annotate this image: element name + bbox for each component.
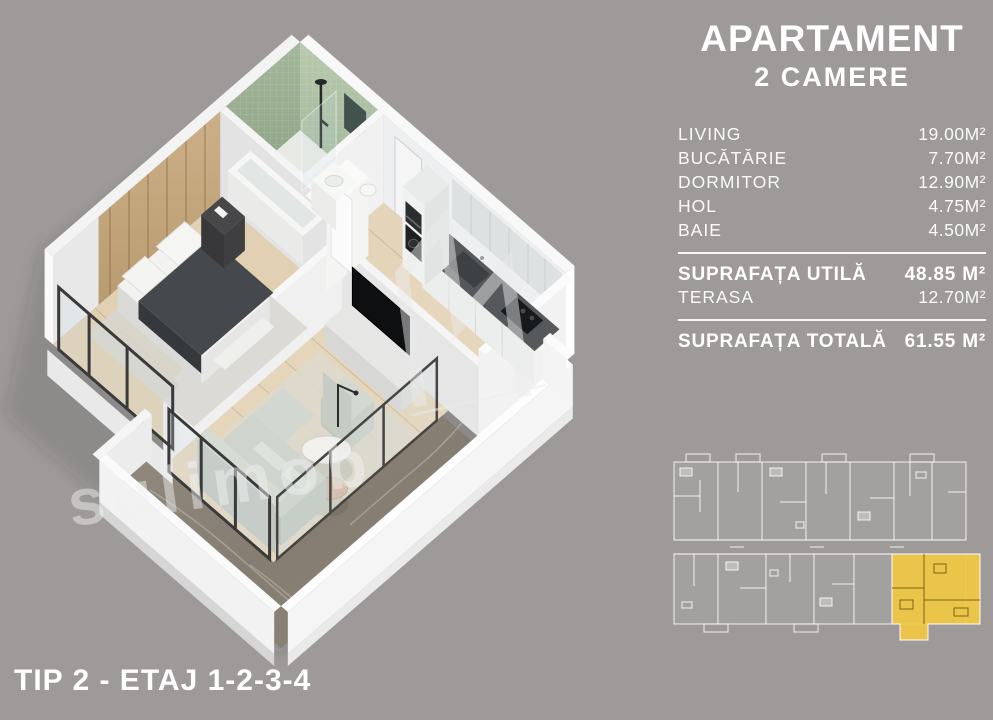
room-row-dormitor: DORMITOR 12.90M²	[678, 171, 986, 195]
useful-area-value: 48.85 M²	[905, 263, 986, 287]
room-label: LIVING	[678, 123, 741, 147]
divider	[678, 319, 986, 321]
room-row-baie: BAIE 4.50M²	[678, 219, 986, 243]
room-area: 12.90M²	[918, 171, 986, 195]
room-area: 7.70M²	[929, 147, 986, 171]
useful-area-label: SUPRAFAȚA UTILĂ	[678, 263, 867, 287]
room-area: 4.75M²	[929, 195, 986, 219]
highlighted-unit	[892, 554, 980, 640]
room-row-living: LIVING 19.00M²	[678, 123, 986, 147]
title-line1: APARTAMENT	[678, 20, 986, 57]
floorplan-3d-render	[0, 0, 665, 720]
room-area: 4.50M²	[929, 219, 986, 243]
appliance-tower	[403, 166, 449, 286]
apartment-listing-card: sulimob APARTAMENT 2 CAMERE LIVING 19.00…	[0, 0, 993, 720]
total-area-label: SUPRAFAȚA TOTALĂ	[678, 330, 887, 354]
room-label: BUCĂTĂRIE	[678, 147, 787, 171]
divider	[678, 252, 986, 254]
room-row-bucatarie: BUCĂTĂRIE 7.70M²	[678, 147, 986, 171]
room-area: 19.00M²	[918, 123, 986, 147]
terrace-row: TERASA 12.70M²	[678, 286, 986, 310]
total-area-row: SUPRAFAȚA TOTALĂ 61.55 M²	[678, 330, 986, 354]
room-row-hol: HOL 4.75M²	[678, 195, 986, 219]
room-label: DORMITOR	[678, 171, 781, 195]
useful-area-row: SUPRAFAȚA UTILĂ 48.85 M²	[678, 263, 986, 287]
title-line2: 2 CAMERE	[678, 62, 986, 93]
terrace-label: TERASA	[678, 286, 754, 310]
building-floor-miniplan	[670, 452, 988, 648]
spec-panel: APARTAMENT 2 CAMERE LIVING 19.00M² BUCĂT…	[678, 20, 986, 353]
room-list: LIVING 19.00M² BUCĂTĂRIE 7.70M² DORMITOR…	[678, 123, 986, 243]
type-floor-label: TIP 2 - ETAJ 1-2-3-4	[14, 664, 311, 698]
room-label: HOL	[678, 195, 717, 219]
room-label: BAIE	[678, 219, 722, 243]
total-area-value: 61.55 M²	[905, 330, 986, 354]
terrace-value: 12.70M²	[918, 286, 986, 310]
